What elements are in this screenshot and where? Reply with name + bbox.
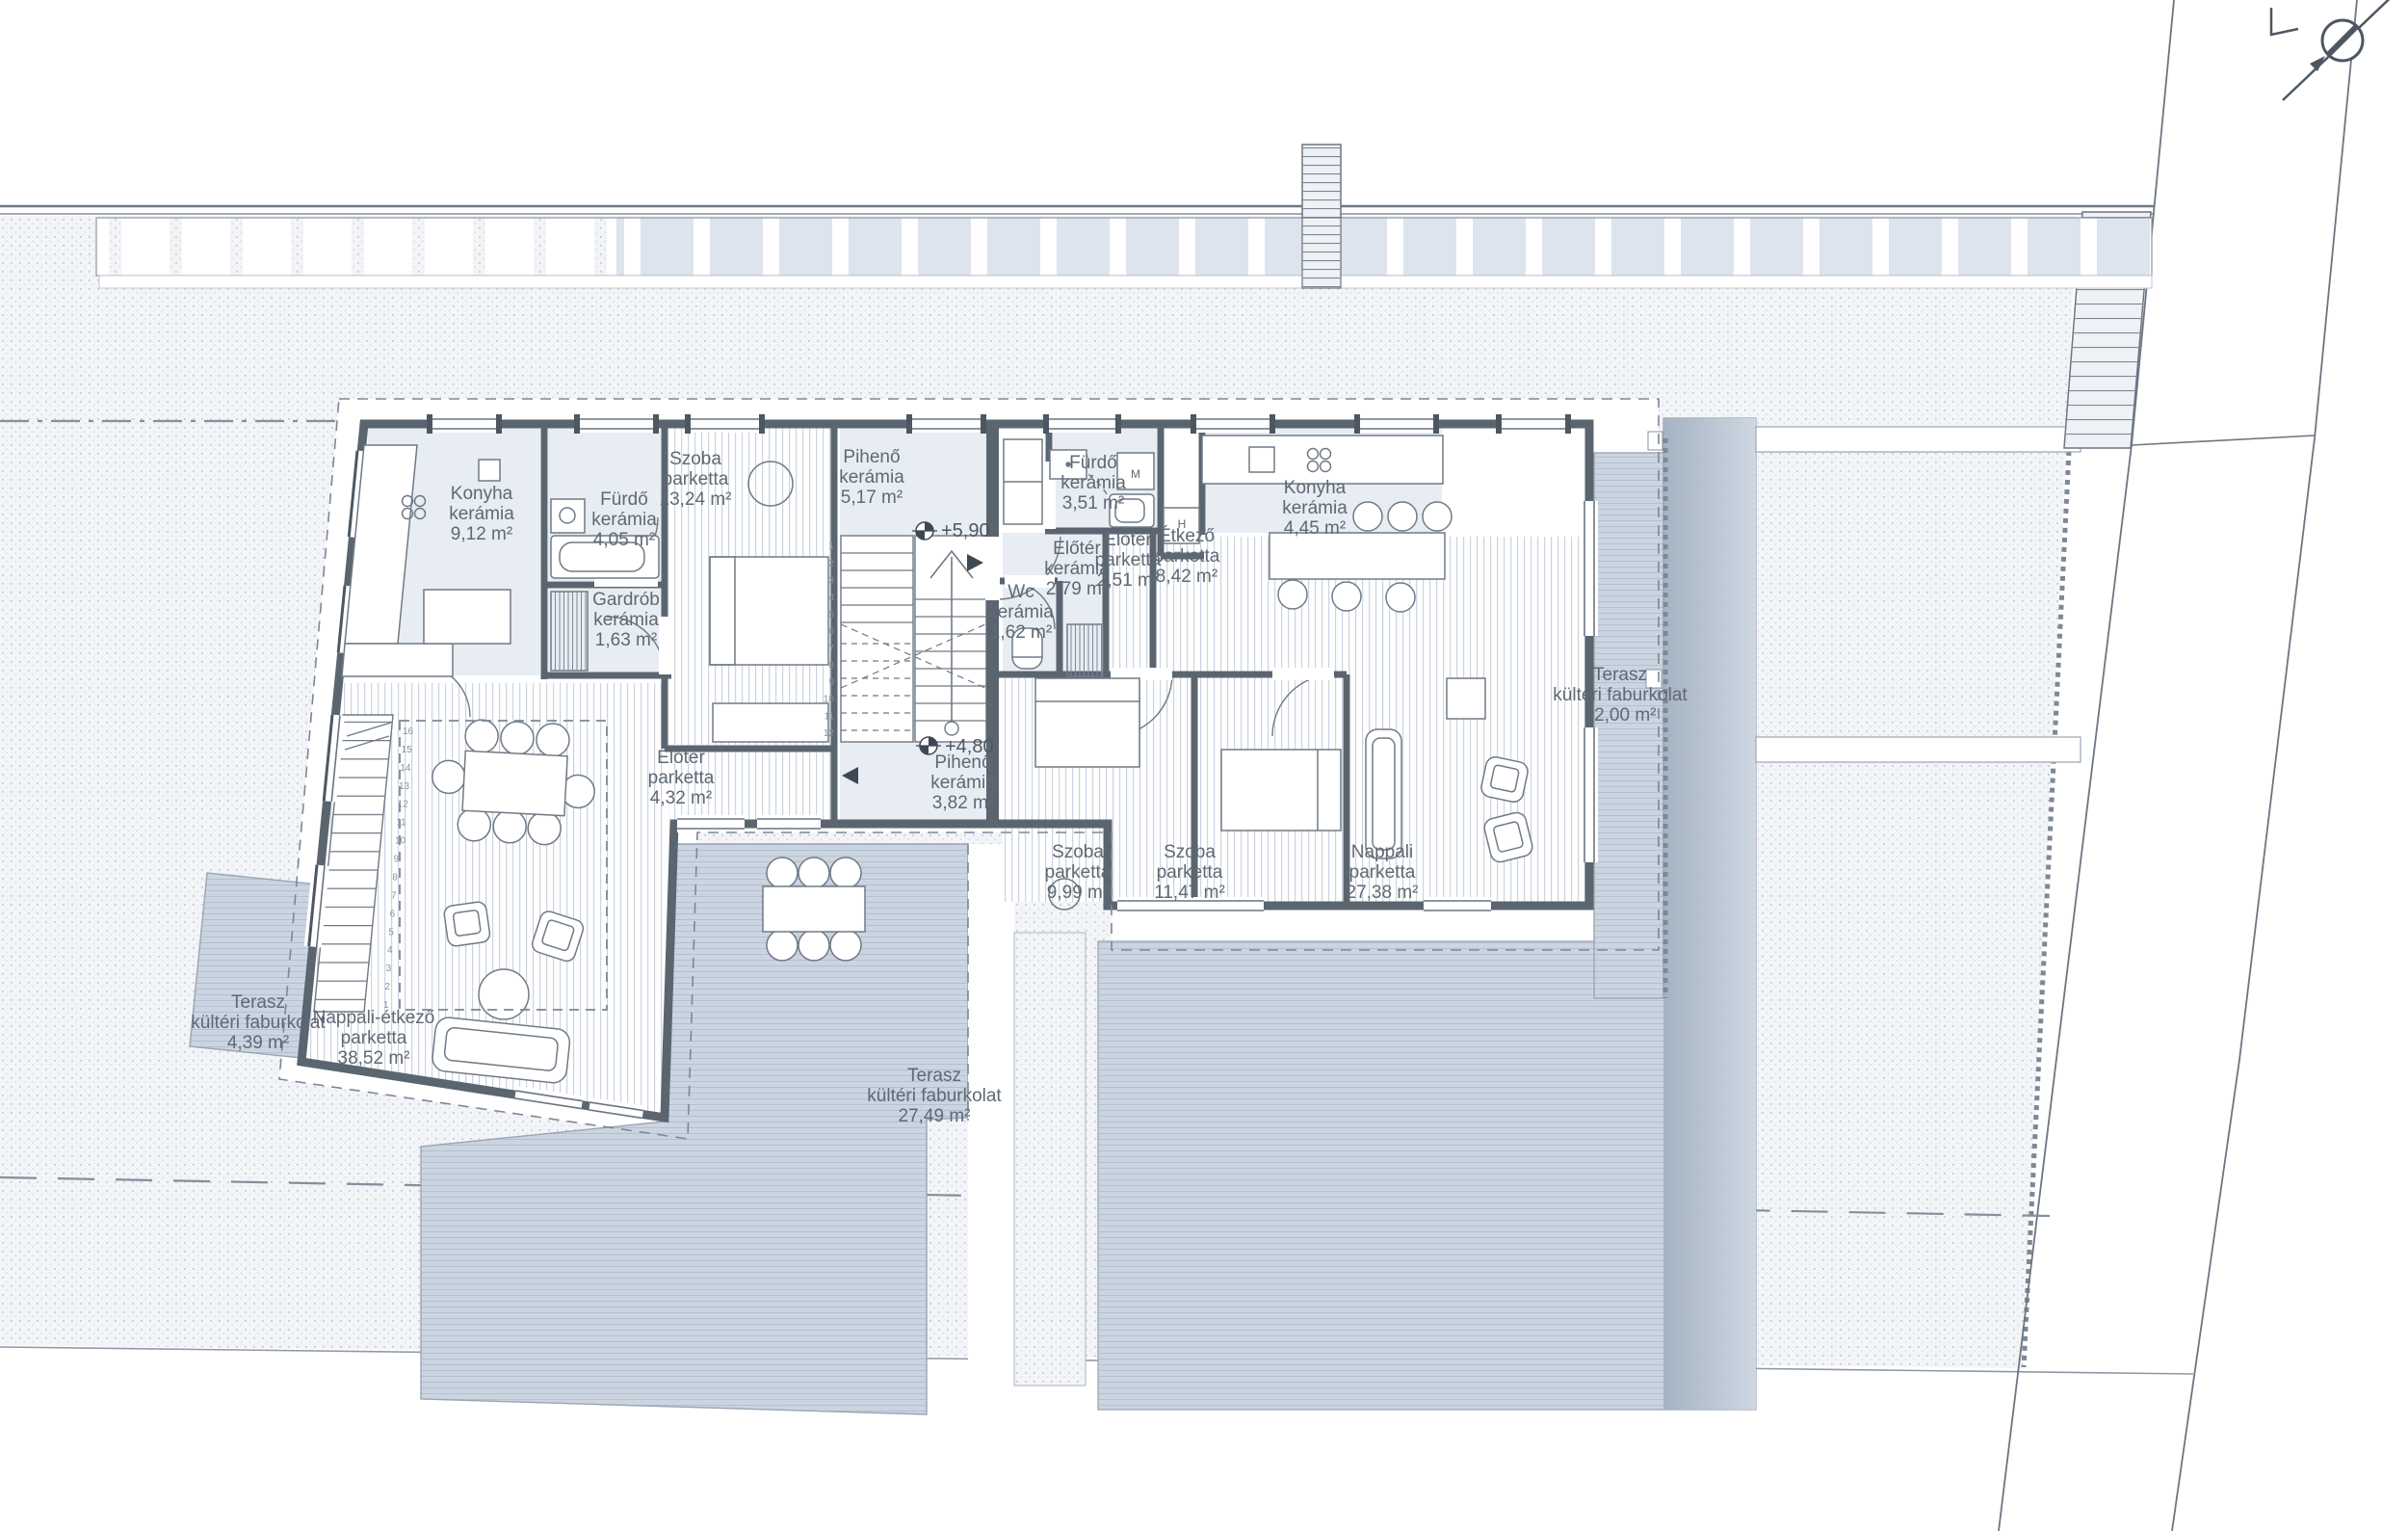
stair-step-number: 9 (828, 677, 834, 688)
gravel-strip (1014, 933, 1086, 1386)
hall-shelves (1067, 624, 1103, 676)
sofa-vertical (1366, 729, 1401, 858)
stair-step-number: 4 (387, 945, 393, 956)
floor-plan-page: Konyhakerámia9,12 m²Fürdőkerámia4,05 m²S… (0, 0, 2408, 1531)
planter-box (1648, 432, 1662, 450)
kitchen-counter-right (1202, 436, 1443, 484)
stair-step-number: 12 (824, 728, 835, 739)
kitchen-counter (342, 644, 453, 676)
stair-step-number: 7 (828, 644, 834, 654)
stair-step-number: 2 (384, 982, 390, 992)
stair-step-number: 10 (824, 695, 835, 705)
walk-gap (968, 844, 1014, 1384)
stair-step-number: 7 (391, 890, 397, 901)
coffee-table (479, 969, 529, 1019)
stair-central (841, 536, 986, 742)
stair-step-number: 3 (386, 963, 392, 974)
pergola-edge-strip (99, 276, 2152, 288)
stair-step-number: 13 (399, 781, 410, 792)
bed (710, 557, 828, 665)
armchair (1479, 755, 1530, 804)
stair-step-number: 14 (400, 763, 411, 774)
side-cabinet (1447, 678, 1485, 719)
armchair (443, 901, 490, 947)
walkway-lower (1756, 737, 2081, 762)
room-label: Fürdőkerámia4,05 m² (591, 489, 657, 550)
column (479, 460, 500, 481)
level-marker-label: +4,80 (945, 736, 994, 757)
room-label: Szobaparketta13,24 m² (660, 449, 732, 510)
stair-step-number: 12 (398, 800, 409, 810)
terrace-east-1200 (1594, 453, 1663, 998)
washbasin (551, 499, 585, 533)
level-marker-label: +5,90 (941, 520, 990, 541)
stair-step-number: 5 (828, 610, 834, 620)
room-label: Előtérparketta2,51 m² (1095, 530, 1162, 591)
room-label: Konyhakerámia9,12 m² (449, 484, 514, 544)
stair-step-number: 2 (828, 559, 834, 569)
stair-step-number: 10 (395, 836, 406, 847)
room-label: Étkezőparketta8,42 m² (1154, 526, 1220, 587)
stair-step-number: 3 (828, 575, 834, 586)
stair-step-number: 11 (824, 711, 835, 722)
bed (1035, 678, 1139, 767)
stair-step-number: 15 (402, 745, 413, 755)
room-label: Pihenőkerámia5,17 m² (839, 447, 904, 508)
room-label: Nappaliparketta27,38 m² (1347, 842, 1419, 903)
kitchen-island (424, 590, 510, 644)
sideboard (713, 703, 828, 742)
stair-step-number: 16 (403, 726, 414, 737)
stair-step-number: 1 (828, 541, 834, 552)
appliance-label: M (1131, 467, 1140, 481)
room-label: Konyhakerámia4,45 m² (1282, 478, 1348, 539)
room-label: Pihenőkerámia3,82 m² (930, 752, 996, 813)
stair-step-number: 6 (828, 626, 834, 637)
stair-step-number: 6 (390, 909, 396, 919)
appliance-label: H (1178, 517, 1187, 531)
stair-step-number: 8 (392, 872, 398, 883)
stair-step-number: 1 (383, 1000, 389, 1011)
wardrobe-shelves (551, 592, 588, 671)
room-label: Fürdőkerámia3,51 m² (1060, 453, 1126, 514)
sink (1249, 447, 1274, 472)
stair-step-number: 4 (828, 593, 834, 603)
dining-set-terrace (763, 858, 865, 961)
room-label: Szobaparketta11,47 m² (1154, 842, 1225, 903)
room-label: Szobaparketta9,99 m² (1045, 842, 1112, 903)
stair-step-number: 11 (396, 818, 406, 829)
retaining-wall-strip (1663, 418, 1756, 1410)
walkway-upper (1756, 427, 2081, 452)
room-label: Előtérparketta4,32 m² (648, 748, 715, 808)
floor-plan-drawing: Konyhakerámia9,12 m²Fürdőkerámia4,05 m²S… (0, 0, 2408, 1531)
room-label: Gardróbkerámia1,63 m² (592, 590, 660, 650)
stair-step-number: 5 (388, 927, 394, 937)
stair-step-number: 8 (828, 660, 834, 671)
bed (1221, 750, 1341, 831)
pergola-band (96, 218, 2152, 288)
stair-step-number: 9 (394, 855, 400, 865)
